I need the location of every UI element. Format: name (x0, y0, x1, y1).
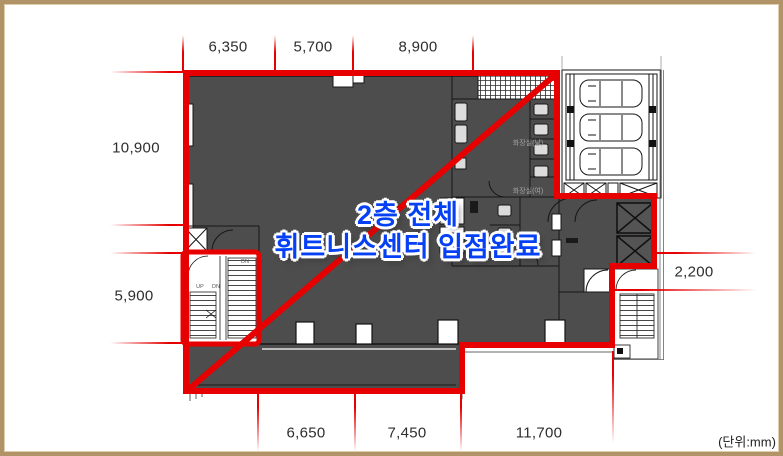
promo-overlay-text: 2층 전체 휘트니스센터 입점완료 (258, 199, 558, 263)
dim-label-bottom-2: 7,450 (387, 425, 426, 442)
dim-label-left-2: 5,900 (114, 288, 153, 305)
dimension-tick (182, 35, 184, 73)
dimension-tick (257, 392, 259, 452)
dimension-tick (656, 252, 756, 254)
dim-label-bottom-3: 11,700 (516, 425, 563, 442)
restroom-label-men: 화장실(남) (513, 138, 543, 147)
dim-label-top-3: 8,900 (398, 39, 437, 56)
dimension-tick (110, 342, 184, 344)
stair-up-label: UP (196, 284, 204, 290)
dimension-tick (460, 392, 462, 452)
dimension-tick (352, 35, 354, 73)
stair-dn-label: DN (241, 259, 249, 265)
parking-lift-area (562, 56, 661, 198)
dim-label-top-2: 5,700 (293, 39, 332, 56)
dim-label-top-1: 6,350 (208, 39, 247, 56)
promo-line-2: 휘트니스센터 입점완료 (258, 231, 558, 263)
dimension-tick (354, 392, 356, 452)
left-stairwell (186, 254, 258, 343)
dimension-tick (110, 224, 184, 226)
dimension-tick (613, 289, 757, 291)
promo-line-1: 2층 전체 (258, 199, 558, 231)
dimension-tick (110, 71, 184, 73)
dim-label-left-1: 10,900 (112, 140, 160, 157)
unit-note: (단위:mm) (718, 432, 776, 451)
dim-label-right-1: 2,200 (674, 264, 713, 281)
stair-dn-label: DN (212, 284, 220, 290)
dimension-tick (472, 35, 474, 73)
dimension-tick (612, 351, 614, 443)
floor-plan-figure: 화장실(남) 화장실(여) (0, 0, 783, 456)
dimension-tick (110, 252, 184, 254)
dim-label-bottom-1: 6,650 (286, 425, 325, 442)
dimension-tick (274, 35, 276, 73)
restroom-label-women: 화장실(여) (513, 186, 543, 195)
